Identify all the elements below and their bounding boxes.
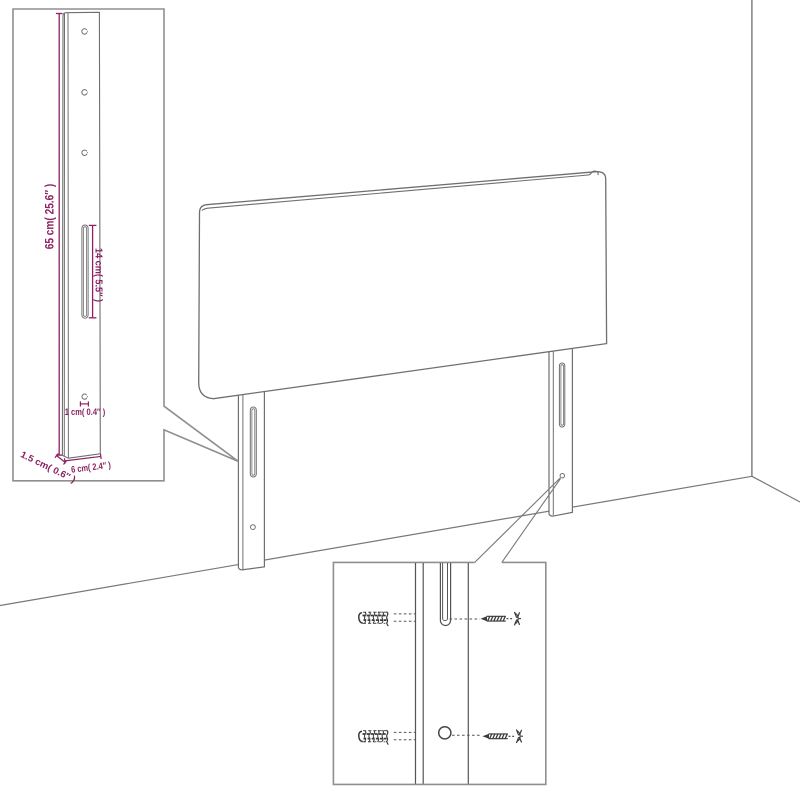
svg-text:1 cm( 0.4″ ): 1 cm( 0.4″ ) — [65, 407, 106, 417]
svg-text:6 cm( 2.4″ ): 6 cm( 2.4″ ) — [70, 460, 111, 475]
svg-text:14 cm( 5.5″ ): 14 cm( 5.5″ ) — [92, 248, 103, 302]
svg-text:65 cm( 25.6″ ): 65 cm( 25.6″ ) — [44, 184, 57, 250]
